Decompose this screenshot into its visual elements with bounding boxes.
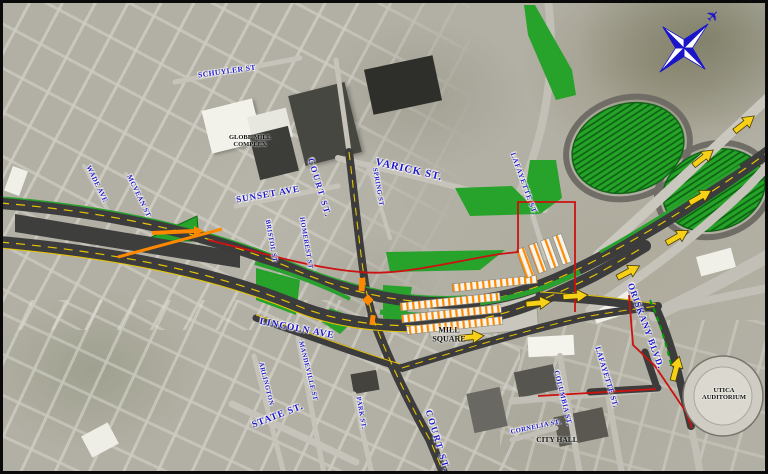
street-label-mandeville-st: MANDEVILLE ST [297, 341, 319, 402]
street-label-cornelia-st: CORNELIA ST. [510, 418, 562, 436]
street-label-schuyler-st: SCHUYLER ST [198, 62, 257, 79]
street-label-lafayette-st-lower: LAFAYETTE ST. [593, 345, 620, 408]
street-label-columbia-st: COLUMBIA ST. [552, 370, 573, 427]
street-label-mcvean-st: MCVEAN ST [125, 173, 152, 218]
street-label-varick-st: VARICK ST. [374, 157, 443, 183]
place-label-globe-mill-complex: GLOBE MILLCOMPLEX [229, 134, 271, 148]
street-label-park-st: PARK ST. [355, 396, 368, 429]
street-label-homerest-st: HOMEREST ST [298, 217, 314, 270]
place-label-utica-auditorium: UTICAAUDITORIUM [702, 387, 746, 401]
place-label-city-hall: CITY HALL [536, 436, 578, 444]
street-label-lincoln-ave: LINCOLN AVE [259, 317, 336, 341]
street-label-bristol-st: BRISTOL ST [264, 219, 278, 263]
street-label-oriskany-blvd: ORISKANY BLVD. [626, 282, 666, 371]
label-layer: SCHUYLER STCOURT ST.VARICK ST.SPRING STL… [0, 0, 768, 474]
street-label-court-st-upper: COURT ST. [306, 157, 334, 219]
street-label-sunset-ave: SUNSET AVE [235, 183, 300, 204]
street-label-wade-ave: WADE AVE [85, 164, 110, 204]
street-label-lafayette-st-upper: LAFAYETTE ST. [509, 152, 539, 217]
place-label-mill-square: MILLSQUARE [432, 326, 465, 343]
street-label-spring-st: SPRING ST [371, 167, 385, 206]
street-label-state-st: STATE ST. [251, 402, 305, 431]
street-label-arlington-st: ARLINGTON [257, 362, 275, 407]
street-label-court-st-lower: COURT ST. [424, 409, 453, 474]
aerial-plan-map: ✈ SCHUYLER STCOURT ST.VARICK ST.SPRING S… [0, 0, 768, 474]
